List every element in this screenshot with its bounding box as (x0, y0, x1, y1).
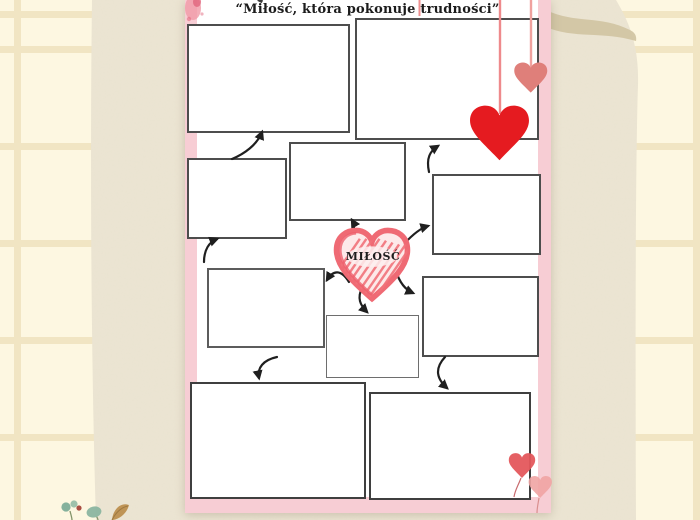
center-topic-label: MIŁOŚĆ (334, 250, 412, 263)
scribble-heart-icon (330, 225, 414, 305)
paper-band (546, 10, 636, 41)
answer-box-top-left[interactable] (187, 24, 350, 133)
answer-box-center-upper[interactable] (289, 142, 406, 221)
plant-sprig-icon (61, 500, 129, 520)
answer-box-left-middle[interactable] (187, 158, 287, 239)
worksheet-title: “Miłość, która pokonuje trudności” (197, 2, 538, 17)
answer-box-left-lower[interactable] (207, 268, 325, 348)
answer-box-center-small[interactable] (326, 315, 419, 378)
answer-box-right-lower[interactable] (422, 276, 539, 357)
answer-box-top-right[interactable] (355, 18, 539, 140)
answer-box-bottom-right[interactable] (369, 392, 531, 500)
answer-box-bottom-left[interactable] (190, 382, 366, 499)
worksheet-screenshot: “Miłość, która pokonuje trudności” (0, 0, 700, 520)
answer-box-right-middle[interactable] (432, 174, 541, 255)
